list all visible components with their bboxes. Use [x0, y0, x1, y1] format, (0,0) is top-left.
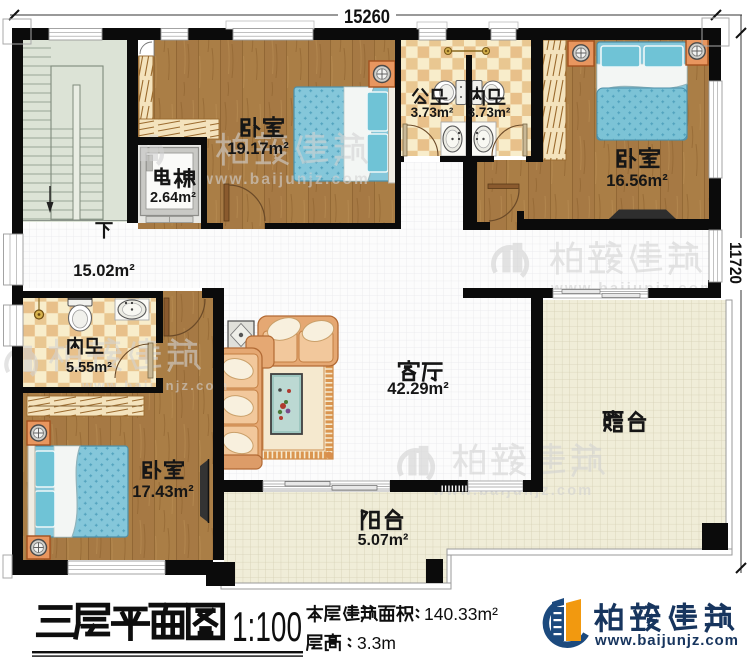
svg-text:42.29m²: 42.29m² [387, 380, 449, 398]
svg-text:3.73m²: 3.73m² [468, 105, 511, 120]
svg-text:140.33m²: 140.33m² [424, 604, 498, 624]
svg-text:15.02m²: 15.02m² [73, 262, 135, 280]
svg-text:19.17m²: 19.17m² [227, 140, 289, 158]
svg-text:2.64m²: 2.64m² [150, 190, 196, 206]
svg-text:www.baijunjz.com: www.baijunjz.com [594, 632, 739, 649]
svg-text:3.3m: 3.3m [357, 633, 396, 653]
svg-text:3.73m²: 3.73m² [411, 105, 454, 120]
svg-text:16.56m²: 16.56m² [606, 172, 668, 190]
svg-text:15260: 15260 [344, 7, 390, 28]
svg-text:1:100: 1:100 [232, 603, 302, 650]
svg-text:5.07m²: 5.07m² [358, 532, 409, 549]
svg-text:11720: 11720 [726, 242, 744, 284]
svg-text:5.55m²: 5.55m² [66, 360, 112, 376]
svg-text:17.43m²: 17.43m² [132, 483, 194, 501]
